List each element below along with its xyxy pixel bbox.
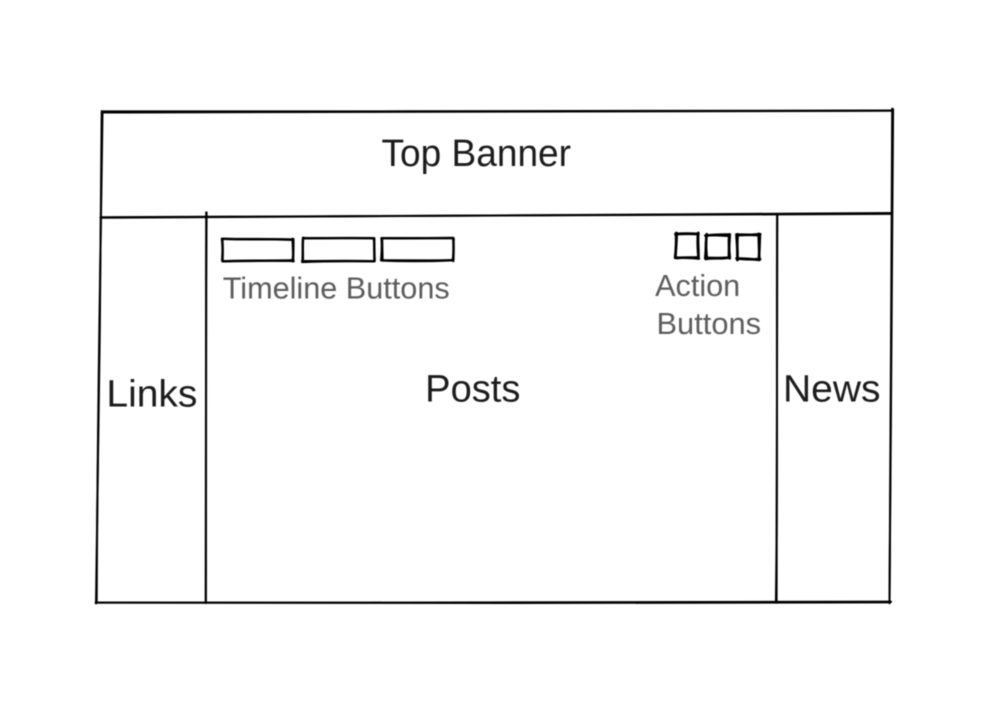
svg-text:Links: Links: [106, 374, 197, 416]
svg-text:News: News: [783, 369, 881, 411]
svg-text:Timeline Buttons: Timeline Buttons: [223, 270, 450, 305]
svg-text:Top Banner: Top Banner: [382, 133, 572, 175]
svg-text:Posts: Posts: [425, 368, 520, 410]
svg-text:ActionButtons: ActionButtons: [655, 268, 761, 341]
